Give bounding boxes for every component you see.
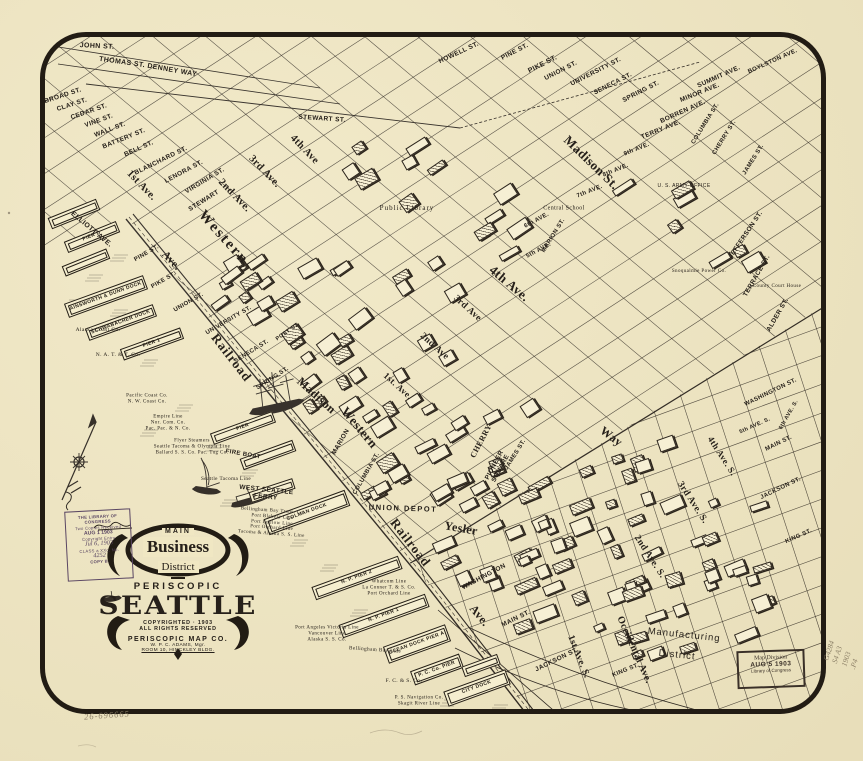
label-western: Western: [194, 207, 252, 269]
label-ave: Ave.: [159, 249, 183, 274]
building: [569, 516, 593, 537]
label-thomas-st: THOMAS ST.: [98, 56, 145, 70]
building: [593, 622, 605, 633]
map-division-stamp: Map Division AUG 5 1903 Library of Congr…: [736, 649, 805, 689]
building: [337, 333, 353, 347]
building: [656, 435, 677, 453]
pier: CITY DOCK: [443, 669, 510, 707]
label-p-s-navigation-co-skagit-riv: P. S. Navigation Co. Skagit River Line: [395, 695, 444, 707]
label-way: Way: [597, 424, 625, 450]
building: [518, 488, 540, 505]
label-spring-st: SPRING ST.: [621, 80, 660, 105]
building: [300, 351, 314, 365]
label-bellingham-bay-line: Bellingham Bay Line: [349, 646, 402, 656]
pier-label: AINSWORTH & DUNN DOCK: [69, 281, 142, 312]
label-union-st: UNION ST.: [173, 292, 205, 315]
label-4th-ave: 4th Ave: [287, 133, 321, 167]
building: [432, 535, 456, 554]
building: [427, 255, 443, 271]
label-marion-st: MARION ST.: [541, 218, 567, 254]
cartouche-main: MAIN: [162, 528, 194, 535]
label-pacific-coast-co-n-w-coast-c: Pacific Coast Co. N. W. Coast Co.: [126, 393, 168, 405]
label-district: District: [658, 649, 696, 664]
building: [473, 221, 496, 241]
cartouche-rule: [171, 577, 185, 579]
building: [640, 490, 654, 505]
label-boylston-ave: BOYLSTON AVE.: [747, 48, 799, 76]
publisher-name: PERISCOPIC MAP CO.: [92, 636, 264, 643]
building: [627, 513, 645, 526]
label-denney-way: DENNEY WAY: [147, 63, 198, 80]
building: [753, 561, 774, 574]
label-king-st: KING ST.: [785, 528, 814, 546]
label-empire-line-nor-com-co-pac-p: Empire Line Nor. Com. Co. Pac. Pac. & N.…: [146, 414, 191, 431]
building: [520, 397, 541, 417]
label-ave: Ave.: [466, 602, 492, 629]
label-alaska-coast-co: Alaska Coast Co.: [76, 327, 121, 333]
label-washington-st: WASHINGTON ST.: [744, 377, 798, 408]
building: [514, 577, 539, 595]
building: [665, 571, 684, 588]
label-n-a-t-t-co: N. A. T. & T. Co.: [96, 352, 141, 358]
pier: SCHWABACHER DOCK: [85, 304, 157, 341]
building: [238, 291, 251, 304]
building: [672, 602, 688, 618]
building: [597, 526, 614, 544]
label-public-library: Public Library: [380, 204, 435, 212]
label-cherry: CHERRY: [468, 423, 493, 460]
building: [459, 497, 479, 513]
label-9th-ave: 9th AVE.: [623, 142, 651, 159]
building: [535, 563, 551, 580]
pier-deck: [65, 251, 107, 273]
pier: OCEAN DOCK PIER A: [383, 624, 451, 663]
pencil-note-margin: G4284 S4 A3 1903 .P4: [821, 617, 863, 670]
cartouche-district: District: [158, 561, 199, 573]
loc-copyright-stamp: THE LIBRARY OF CONGRESS Two Copies Recei…: [64, 508, 134, 581]
building: [609, 543, 623, 559]
building: [504, 524, 524, 541]
building: [239, 272, 261, 291]
label-6th-ave: 6th AVE.: [523, 212, 550, 231]
building: [745, 573, 758, 586]
label-jackson-st: JACKSON ST.: [760, 476, 803, 502]
label-4th-ave-s: 4th Ave. S.: [705, 434, 738, 477]
label-john-st: JOHN ST.: [79, 42, 114, 52]
label-port-angeles-victoria-line-v: Port Angeles Victoria Line Vancouver Lin…: [295, 625, 359, 642]
building: [734, 626, 759, 644]
building: [708, 498, 720, 509]
building: [749, 501, 768, 514]
label-alder-st: ALDER ST.: [765, 297, 790, 333]
building: [332, 260, 351, 277]
building: [421, 402, 436, 415]
building: [481, 491, 499, 510]
building: [497, 478, 517, 497]
label-union-depot: UNION DEPOT: [369, 503, 438, 514]
building: [667, 219, 682, 234]
label-3rd-ave: 3rd Ave.: [246, 153, 283, 190]
building: [381, 400, 397, 417]
building: [605, 498, 617, 509]
label-howell-st: HOWELL ST.: [438, 40, 480, 65]
building: [579, 465, 594, 479]
building: [498, 245, 520, 262]
building: [351, 140, 366, 155]
building: [440, 554, 460, 570]
label-7th-ave: 7th AVE.: [576, 184, 604, 201]
compass-rose-icon: [62, 415, 96, 510]
label-snoqualmie-power-co: Snoqualmie Power Co.: [672, 269, 726, 275]
building: [406, 136, 430, 156]
label-seneca-st: SENECA ST.: [593, 71, 634, 97]
label-u-s-army-office: U. S. ARMY OFFICE: [657, 184, 710, 190]
label-2nd-ave: 2nd Ave.: [215, 177, 253, 215]
label-pike-st: PIKE ST.: [150, 271, 177, 291]
building: [348, 367, 366, 385]
building: [347, 307, 372, 331]
pier-deck: [464, 657, 497, 674]
building: [256, 295, 274, 312]
building: [634, 458, 652, 474]
cartouche-business: Business: [143, 537, 213, 557]
label-6th-ave-s: 6th AVE. S.: [778, 399, 800, 431]
label-3rd-ave: 3rd Ave: [451, 294, 484, 325]
label-main-st: MAIN ST.: [765, 435, 794, 454]
building: [551, 558, 573, 575]
label-madison-st: Madison St.: [560, 133, 621, 193]
building: [611, 453, 624, 464]
pier-label: PIER 1: [143, 338, 162, 349]
map-title: SEATTLE: [82, 591, 275, 620]
building: [569, 497, 593, 515]
label-university-st: UNIVERSITY ST.: [205, 305, 253, 337]
building: [211, 295, 230, 312]
label-seneca-st: SENECA ST.: [234, 339, 271, 366]
building: [571, 590, 587, 606]
building: [401, 154, 418, 170]
building: [275, 291, 299, 313]
antique-map-sheet: PIER DAINSWORTH & DUNN DOCKSCHWABACHER D…: [0, 0, 863, 761]
label-cherry-st: CHERRY ST.: [712, 119, 739, 156]
label-f-c-s-co: F. C. & S. Co.: [386, 678, 423, 684]
label-pine-st: PINE ST.: [500, 42, 530, 62]
label-seattle-tacoma-line: Seattle Tacoma Line: [201, 477, 251, 483]
label-2nd-ave-s: 2nd Ave. S.: [631, 533, 667, 580]
label-bell-st: BELL ST.: [123, 139, 155, 159]
building: [541, 579, 563, 596]
label-stewart-st: STEWART ST.: [298, 114, 346, 125]
building: [426, 159, 446, 176]
label-james-st: JAMES ST.: [742, 143, 766, 176]
building: [532, 603, 558, 624]
label-marion: MARION: [331, 428, 352, 457]
label-pine-st: PINE ST.: [133, 244, 160, 264]
building: [645, 609, 667, 624]
building: [493, 182, 518, 205]
label-5th-ave-s: 5th AVE. S.: [739, 416, 772, 435]
building: [487, 519, 504, 532]
map-area: PIER DAINSWORTH & DUNN DOCKSCHWABACHER D…: [45, 37, 821, 709]
publisher-address: ROOM 10, HINCKLEY BLDG.: [92, 648, 264, 653]
label-flyer-steamers-seattle-tacom: Flyer Steamers Seattle Tacoma & Olympia …: [154, 438, 230, 455]
label-whatcom-line-la-conner-t-s-c: Whatcom Line La Conner T. & S. Co. Port …: [362, 579, 416, 596]
label-spring-st: SPRING ST.: [255, 366, 290, 392]
label-central-school: Central School: [543, 206, 584, 213]
label-county-court-house: County Court House: [753, 284, 802, 290]
cartouche-rights: ALL RIGHTS RESERVED: [92, 626, 264, 632]
building: [297, 257, 323, 279]
label-4th-ave: 4th Ave.: [486, 263, 532, 305]
pencil-note-bottom: 26-696665: [84, 708, 130, 721]
label-manufacturing: Manufacturing: [647, 627, 721, 646]
mapdiv-stamp-line: Library of Congress: [739, 667, 803, 674]
